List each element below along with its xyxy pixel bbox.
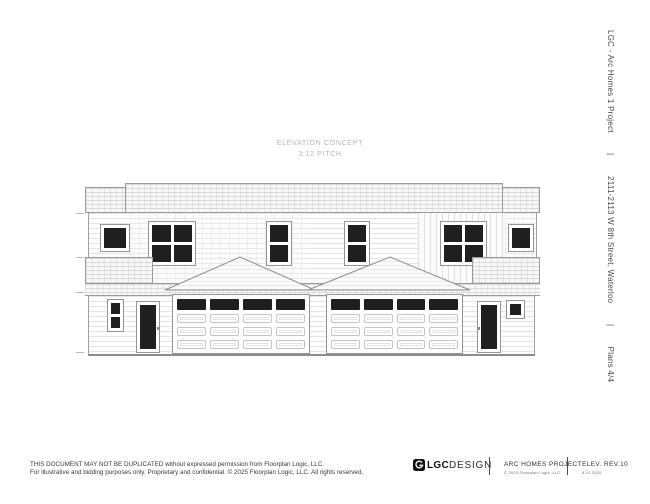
garage-panel: [210, 314, 239, 323]
garage-panel: [210, 340, 239, 349]
garage-panel: [331, 327, 360, 336]
lgc-design-logo: LGC DESIGN: [413, 459, 492, 471]
garage-panel: [177, 340, 206, 349]
garage-lite: [177, 299, 206, 310]
entry-door-right-unit: [477, 301, 501, 353]
garage-panel: [243, 340, 272, 349]
garage-lite: [210, 299, 239, 310]
sheet-title-strip: LGC - Arc Homes 1 Project | 2111-2113 W …: [606, 30, 615, 450]
logo-text-lgc: LGC: [427, 460, 449, 471]
footer-divider: [567, 457, 568, 475]
disclaimer-line2: For illustrative and bidding purposes on…: [30, 469, 363, 477]
door-panel: [140, 305, 156, 349]
front-elevation-drawing: [85, 183, 540, 356]
window-pane: [444, 225, 462, 242]
footer-divider: [489, 457, 490, 475]
garage-door-left: [172, 294, 310, 354]
door-knob: [157, 327, 159, 330]
garage-lite: [276, 299, 305, 310]
window-pane: [465, 225, 483, 242]
garage-panel: [243, 327, 272, 336]
footer-revision-block: ELEV. REV.10 6.12.2025: [582, 461, 628, 475]
project-address: 2111-2113 W 8th Street, Waterloo: [606, 176, 615, 303]
door-knob: [478, 327, 480, 330]
window-small-left-unit: [107, 299, 124, 332]
roof-band-main: [125, 183, 503, 213]
garage-panel: [331, 314, 360, 323]
garage-panel: [243, 314, 272, 323]
footer-disclaimer: THIS DOCUMENT MAY NOT BE DUPLICATED with…: [30, 461, 363, 477]
garage-door-right: [326, 294, 463, 354]
garage-panel: [429, 327, 458, 336]
window-pane: [348, 225, 366, 242]
window-pane: [104, 228, 126, 248]
window-pane: [174, 225, 193, 242]
plan-sheet: ELEVATION CONCEPT 3:12 PITCH LGC - Arc H…: [0, 0, 650, 504]
window-pane: [152, 225, 171, 242]
gable-left: [165, 257, 315, 290]
footer-project-copyright: © 2025 Floorplan Logic, LLC: [504, 470, 582, 475]
elevation-tick: [76, 213, 84, 214]
door-panel: [481, 305, 497, 349]
garage-panel: [397, 327, 426, 336]
footer-project-name: ARC HOMES PROJECT: [504, 461, 582, 468]
title-separator: |: [606, 324, 615, 326]
garage-panel: [276, 340, 305, 349]
elevation-tick: [76, 292, 84, 293]
garage-lite: [429, 299, 458, 310]
garage-panel: [276, 314, 305, 323]
gable-right: [308, 257, 470, 290]
roof-band-right: [501, 187, 540, 213]
window-single-left-wing: [100, 224, 130, 252]
footer-project-block: ARC HOMES PROJECT © 2025 Floorplan Logic…: [504, 461, 582, 475]
garage-panel: [177, 327, 206, 336]
project-title: LGC - Arc Homes 1 Project: [606, 30, 615, 133]
lgc-logo-icon: [413, 459, 425, 471]
garage-panel: [364, 340, 393, 349]
garage-panel: [364, 314, 393, 323]
title-separator: |: [606, 153, 615, 155]
garage-panel: [429, 340, 458, 349]
footer-revision-date: 6.12.2025: [582, 470, 628, 475]
garage-panel: [331, 340, 360, 349]
footer-revision: ELEV. REV.10: [582, 461, 628, 468]
garage-panel: [276, 327, 305, 336]
entry-door-left-unit: [136, 301, 160, 353]
garage-panel: [429, 314, 458, 323]
garage-lite: [397, 299, 426, 310]
garage-lite: [331, 299, 360, 310]
garage-panel: [397, 340, 426, 349]
concept-line1: ELEVATION CONCEPT: [230, 138, 410, 149]
window-small-right-unit: [506, 300, 525, 319]
garage-panel: [177, 314, 206, 323]
window-pane: [512, 228, 530, 248]
disclaimer-line1: THIS DOCUMENT MAY NOT BE DUPLICATED with…: [30, 461, 363, 469]
window-pane: [510, 304, 521, 315]
garage-gables: [85, 250, 540, 296]
elevation-tick: [76, 352, 84, 353]
elevation-concept-label: ELEVATION CONCEPT 3:12 PITCH: [230, 138, 410, 160]
window-pane: [270, 225, 288, 242]
elevation-tick: [76, 257, 84, 258]
garage-lite: [243, 299, 272, 310]
window-single-right-wing: [508, 224, 534, 252]
garage-panel: [210, 327, 239, 336]
window-pane: [111, 303, 120, 314]
sheet-number: Plans 4/4: [606, 347, 615, 383]
concept-line2: 3:12 PITCH: [230, 149, 410, 160]
garage-panel: [364, 327, 393, 336]
roof-band-left: [85, 187, 127, 213]
logo-text-design: DESIGN: [449, 460, 492, 471]
window-pane: [111, 317, 120, 328]
garage-panel: [397, 314, 426, 323]
garage-lite: [364, 299, 393, 310]
